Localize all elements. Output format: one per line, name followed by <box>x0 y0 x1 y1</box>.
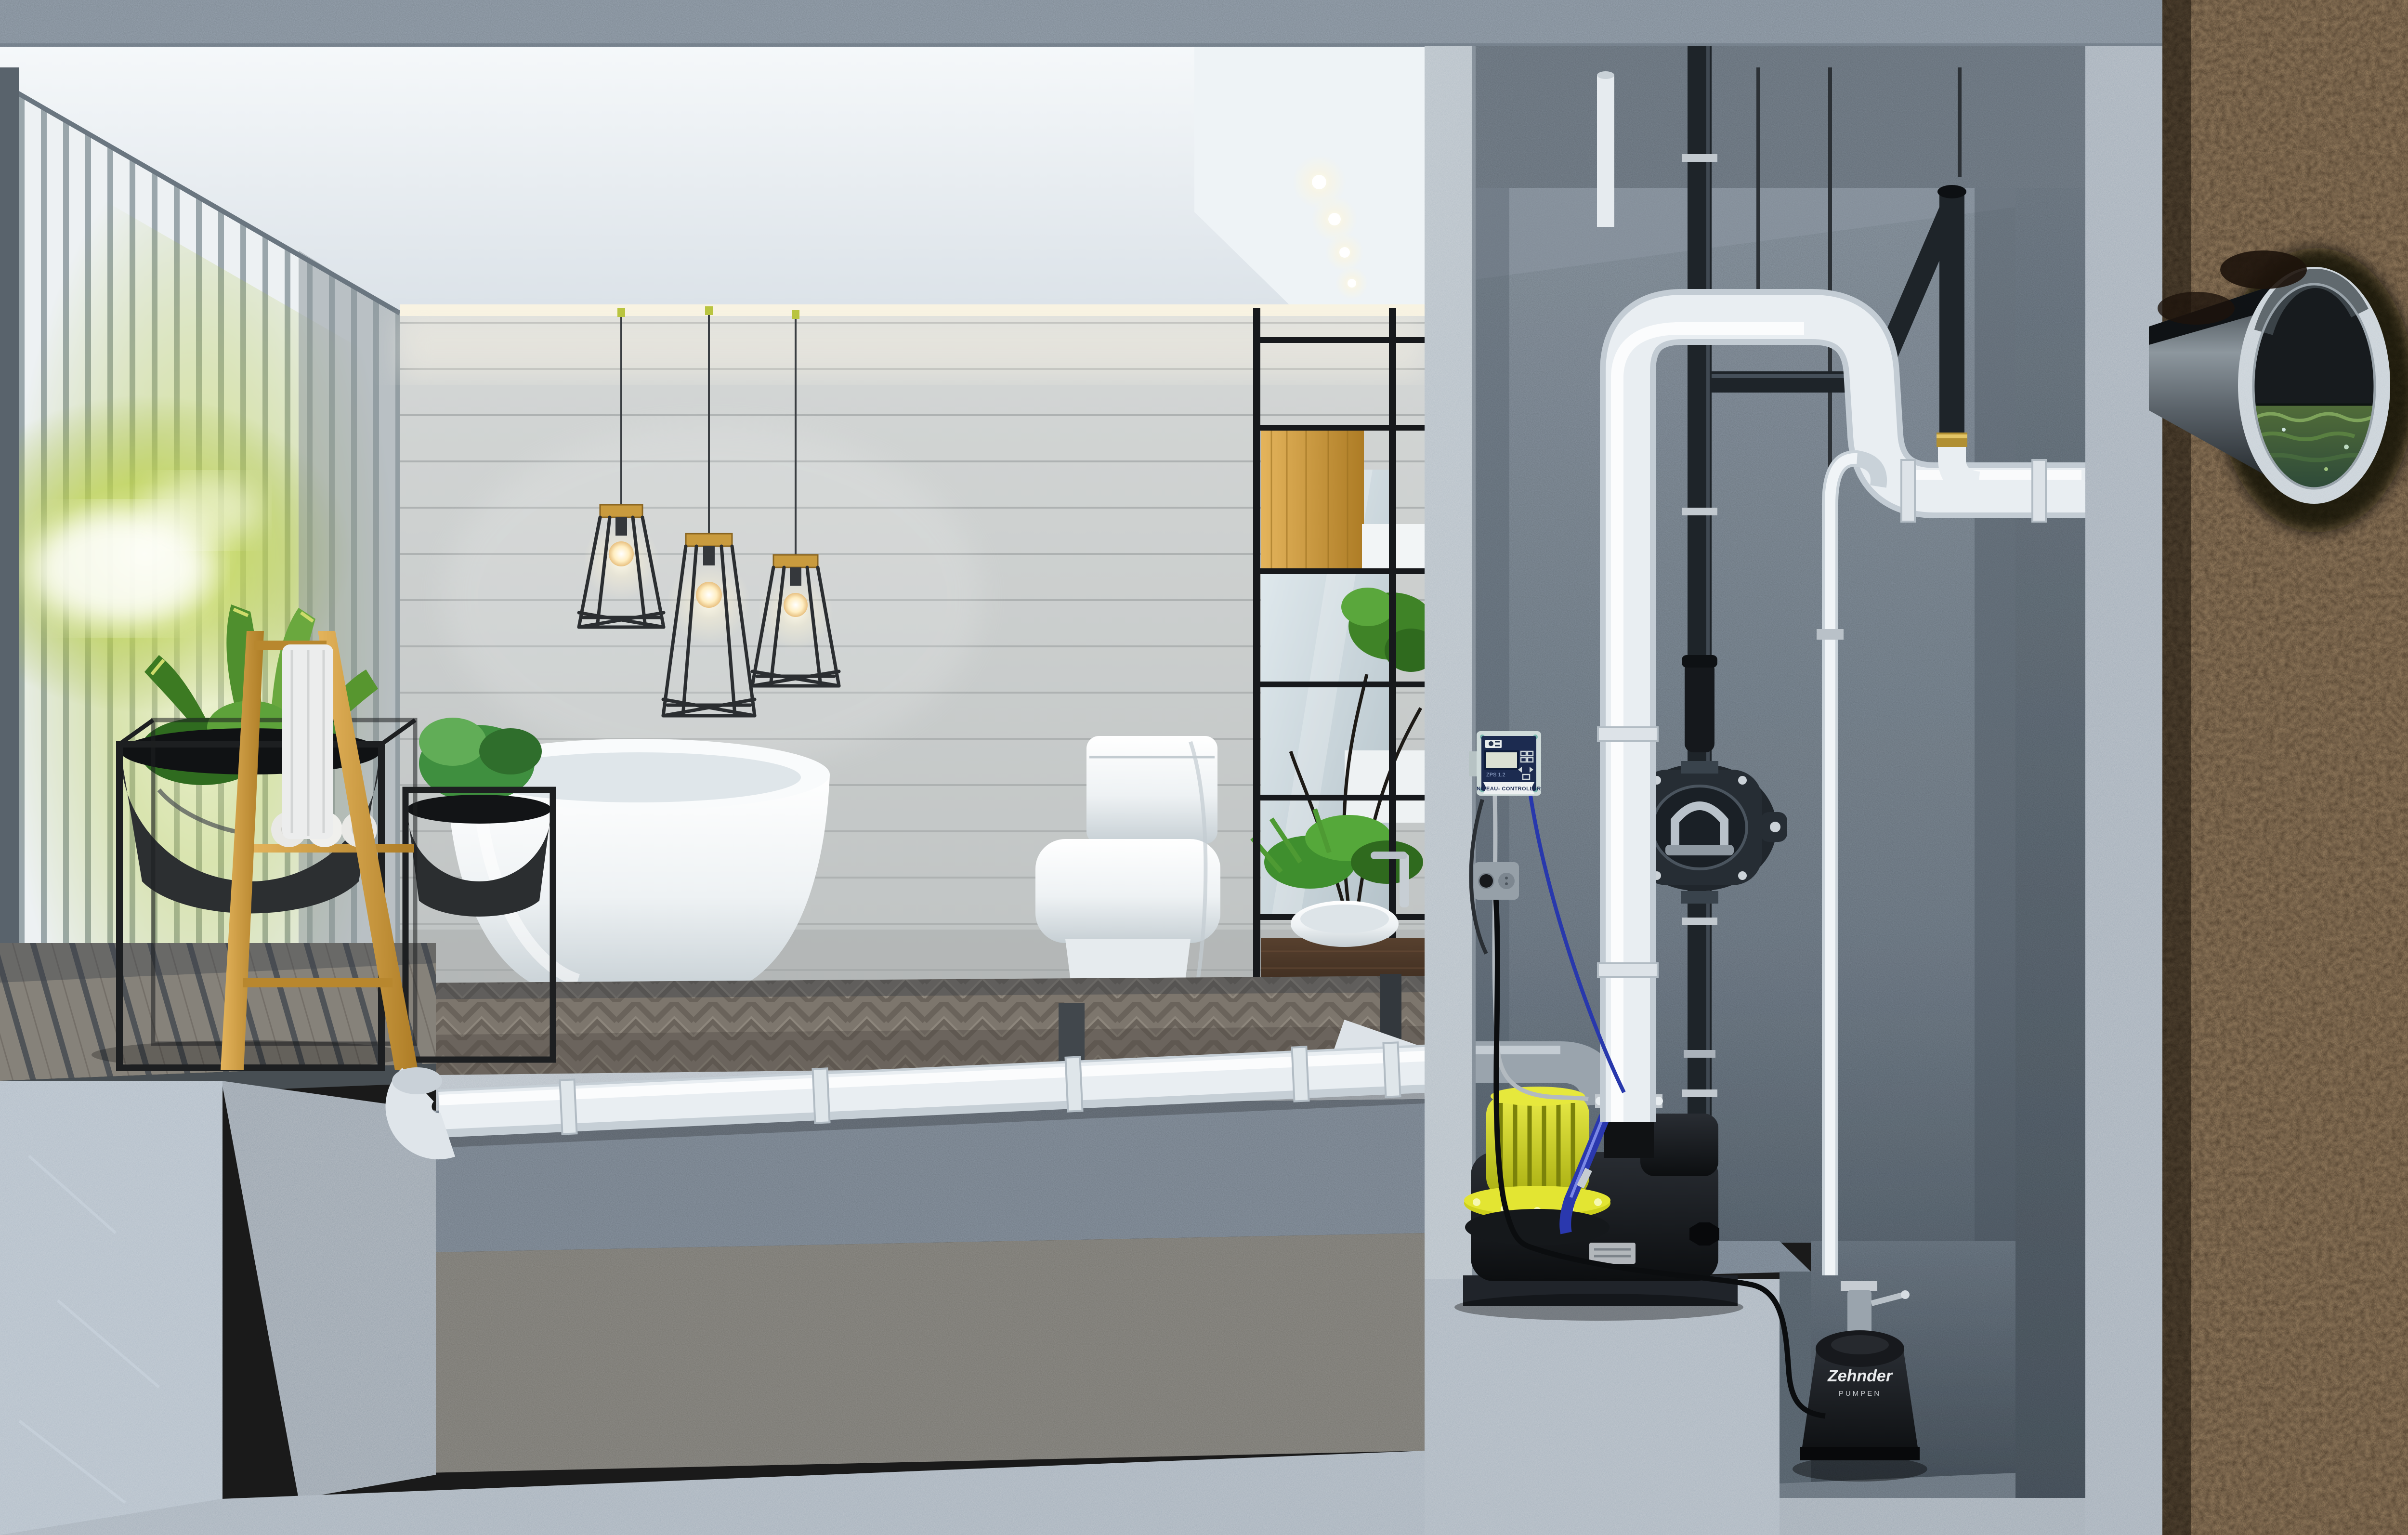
cove-light <box>400 304 1425 316</box>
utility-shaft: Zehnder PUMPEN ZPS 1.2 NIVEAU- CONTROLLE… <box>1425 46 2162 1535</box>
trench-floor <box>337 1233 1425 1475</box>
top-slab-cut <box>0 0 2162 47</box>
sump-pump-brand-sub: PUMPEN <box>1839 1390 1881 1398</box>
power-socket <box>1474 862 1519 900</box>
toilet-tank <box>1086 736 1217 844</box>
divider-wall <box>1425 46 1476 1279</box>
sump-pump-brand: Zehnder <box>1827 1367 1893 1385</box>
cutaway-illustration: Zehnder PUMPEN ZPS 1.2 NIVEAU- CONTROLLE… <box>0 0 2408 1535</box>
controller-model: ZPS 1.2 <box>1486 772 1505 778</box>
riser-clamp <box>1817 629 1844 640</box>
plug <box>1479 874 1493 888</box>
wood-accent-panel <box>1261 428 1364 571</box>
tank-label <box>1589 1243 1636 1264</box>
platform <box>0 943 436 1100</box>
controller-title: NIVEAU- CONTROLLER <box>1477 786 1541 792</box>
soil-cross-section <box>2149 0 2408 1535</box>
controller-screen <box>1485 751 1518 769</box>
hanging-towel <box>282 644 333 839</box>
foreground-cut-face <box>0 1081 222 1535</box>
toilet-body <box>1035 839 1220 943</box>
vent-stub <box>1597 75 1614 227</box>
level-controller: ZPS 1.2 NIVEAU- CONTROLLER <box>1469 731 1541 796</box>
right-front-cut <box>2085 46 2162 1535</box>
right-inner-wall <box>2015 188 2085 1498</box>
shaft-back-wall <box>1476 188 2015 1243</box>
steel-drop-stub <box>1939 190 1964 433</box>
rubber-sleeve <box>1685 661 1714 752</box>
